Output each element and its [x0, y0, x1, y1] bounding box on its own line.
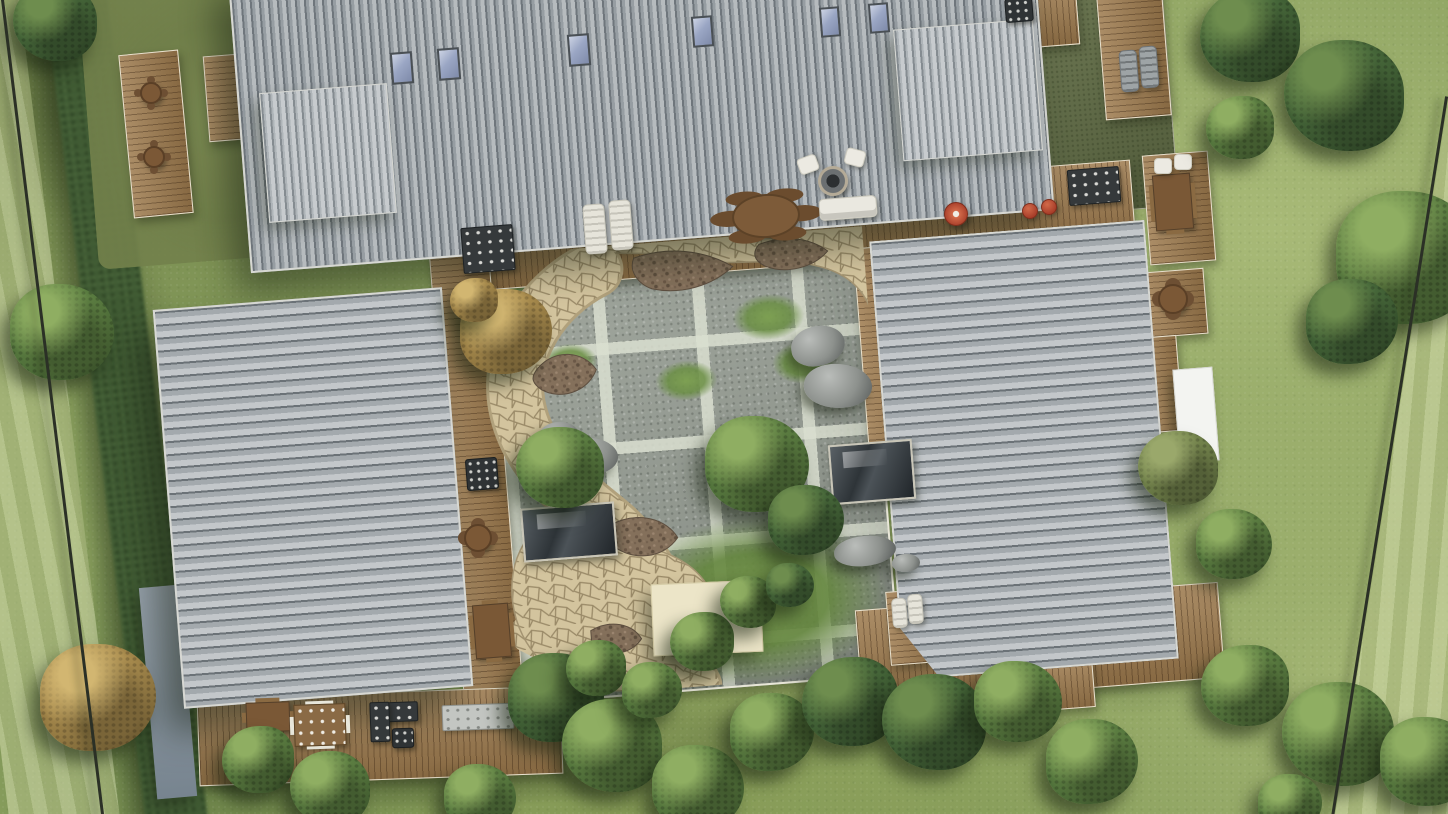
rw-lounger-2	[907, 593, 924, 624]
boulder-1	[788, 322, 847, 369]
walkway-dining-table	[472, 603, 512, 660]
sun-lounger-1	[582, 203, 608, 255]
boulder-2	[802, 361, 874, 412]
walkway-grill-table	[465, 457, 499, 491]
ne-dining-table	[1152, 173, 1194, 232]
objects-and-planting-layer	[0, 0, 1448, 814]
bush-south-5	[566, 640, 626, 696]
bush-east-olive	[1138, 431, 1218, 505]
sun-lounger-2	[608, 199, 634, 251]
red-umbrella	[944, 202, 968, 226]
stair-skylight-east	[828, 439, 916, 505]
courtyard-bush-s	[622, 662, 682, 718]
red-chair-1	[1022, 203, 1038, 219]
nw-balcony-table-2	[143, 146, 165, 168]
bush-south-10	[882, 674, 986, 770]
tree-west-mid	[10, 284, 114, 380]
ne-deck-grill-table	[1067, 166, 1122, 206]
bush-south-2	[290, 751, 370, 814]
ne-balcony-chair-1	[1154, 158, 1172, 174]
grey-lounger-2	[1138, 45, 1159, 88]
tree-se-4	[1258, 774, 1322, 814]
courtyard-pine	[768, 485, 844, 555]
east-balcony-table	[1158, 284, 1188, 314]
bush-south-3	[444, 764, 516, 814]
outdoor-kitchen-counter-b	[369, 702, 390, 743]
outdoor-sofa	[818, 195, 878, 221]
north-deck-bbq-table	[460, 224, 515, 274]
tree-east-2	[1284, 40, 1404, 151]
lounge-chair-1	[796, 153, 821, 176]
nw-balcony-table-1	[140, 82, 162, 104]
stair-skylight-west	[520, 501, 618, 562]
ne-balcony-chair-2	[1174, 154, 1192, 170]
bush-south-11	[974, 661, 1062, 742]
tree-se-1	[1201, 645, 1289, 726]
boulder-5	[833, 534, 897, 568]
rooftop-grill	[1004, 0, 1034, 23]
boulder-6	[892, 554, 920, 572]
rw-lounger-1	[891, 597, 908, 628]
fire-pit	[818, 166, 848, 196]
courtyard-autumn-small	[450, 278, 498, 322]
bush-south-7	[652, 745, 744, 814]
tree-nw-top	[13, 0, 97, 61]
tree-west-autumn	[40, 644, 156, 751]
bush-south-1	[222, 726, 294, 793]
kitchen-white-table	[293, 703, 346, 747]
oval-dining-table	[730, 191, 801, 240]
tree-se-3	[1380, 717, 1448, 806]
tree-east-4	[1306, 279, 1398, 364]
aerial-site-rendering	[0, 0, 1448, 814]
kitchen-grill	[392, 728, 415, 749]
courtyard-bush-se1	[670, 612, 734, 671]
red-chair-2	[1041, 199, 1057, 215]
courtyard-tree-west	[516, 427, 604, 508]
tree-east-5	[1206, 96, 1274, 159]
kitchen-sink-counter	[442, 703, 515, 731]
bush-east-2	[1196, 509, 1272, 579]
lounge-chair-2	[843, 147, 867, 169]
grey-lounger-1	[1118, 49, 1139, 92]
tree-east-1	[1200, 0, 1300, 82]
courtyard-bush-se3	[766, 563, 814, 607]
walkway-round-table	[464, 524, 492, 552]
bush-south-12	[1046, 719, 1138, 804]
